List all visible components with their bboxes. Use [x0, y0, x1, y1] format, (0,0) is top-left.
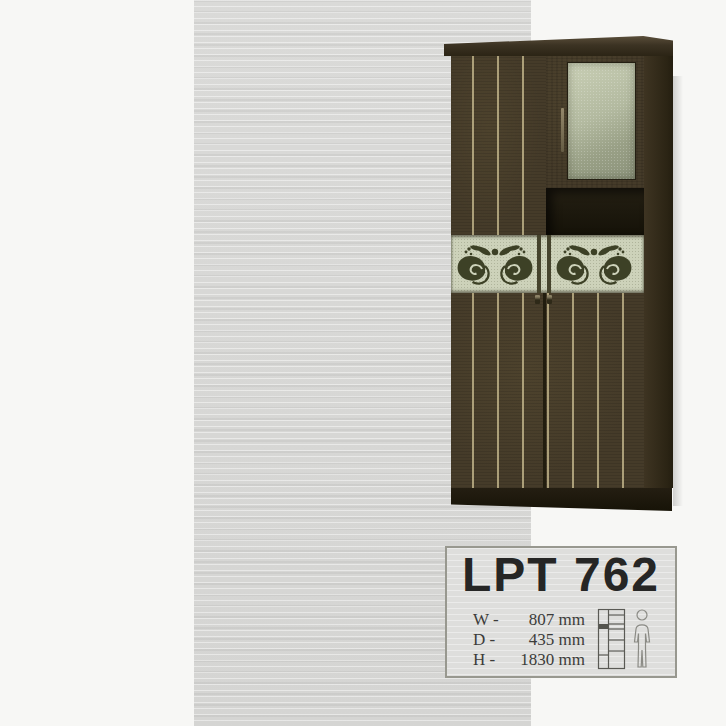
- dimension-list: W - 807 mm D - 435 mm H - 1830 mm: [473, 610, 585, 670]
- human-figure-icon: [635, 610, 650, 667]
- door-stile: [547, 235, 551, 293]
- door-knob-right: [547, 295, 552, 304]
- door-stile: [537, 235, 541, 293]
- wardrobe-top-board: [444, 36, 673, 56]
- wardrobe-photo: [442, 36, 674, 514]
- width-value: 807 mm: [529, 610, 585, 630]
- height-label: H -: [473, 650, 495, 670]
- wardrobe-plinth: [451, 488, 672, 511]
- wardrobe-shelves-diagram-icon: [599, 610, 625, 669]
- depth-label: D -: [473, 630, 495, 650]
- glass-door-handle-icon: [561, 108, 564, 152]
- wardrobe-lower-doors: [451, 293, 644, 488]
- dimension-row-depth: D - 435 mm: [473, 630, 585, 650]
- width-label: W -: [473, 610, 499, 630]
- wardrobe-front: [451, 56, 644, 488]
- lower-door-gap: [543, 293, 546, 488]
- door-knob-left: [535, 295, 540, 304]
- frosted-glass-panel: [567, 62, 636, 180]
- dimension-row-height: H - 1830 mm: [473, 650, 585, 670]
- wardrobe-glass-display-door: [546, 56, 644, 188]
- scale-diagram: [597, 608, 663, 674]
- product-label-plate: LPT 762 W - 807 mm D - 435 mm H - 1830 m…: [445, 546, 677, 678]
- wardrobe-shadow: [673, 76, 683, 506]
- dimension-row-width: W - 807 mm: [473, 610, 585, 630]
- wardrobe-upper-left-door: [451, 56, 547, 235]
- product-code: LPT 762: [447, 553, 675, 597]
- depth-value: 435 mm: [529, 630, 585, 650]
- open-compartment: [546, 188, 644, 235]
- ornament-band: [451, 235, 644, 293]
- height-value: 1830 mm: [520, 650, 585, 670]
- scanned-photo-strip: LPT 762 W - 807 mm D - 435 mm H - 1830 m…: [194, 0, 531, 726]
- wardrobe-side-panel: [644, 52, 673, 488]
